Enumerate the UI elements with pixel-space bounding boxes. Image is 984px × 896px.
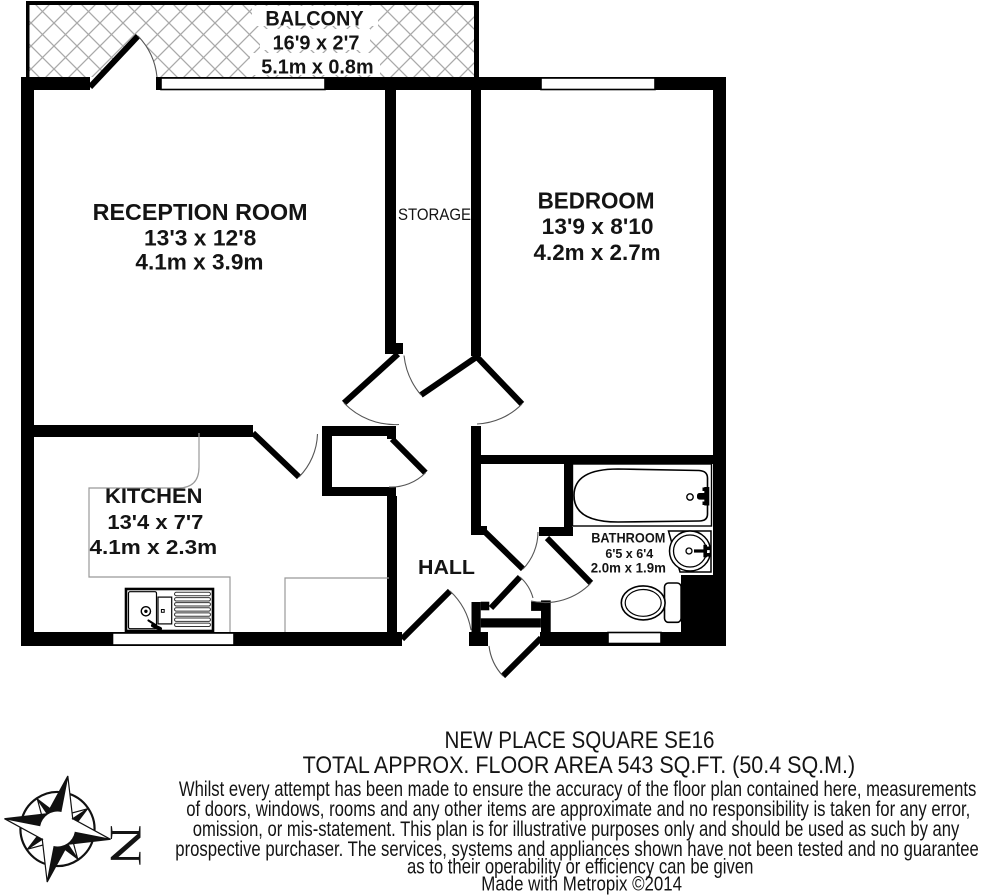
svg-text:4.2m x 2.7m: 4.2m x 2.7m	[534, 240, 661, 265]
svg-text:N: N	[100, 825, 150, 867]
svg-text:HALL: HALL	[418, 557, 475, 579]
svg-text:2.0m x 1.9m: 2.0m x 1.9m	[591, 560, 666, 575]
svg-text:13'3 x 12'8: 13'3 x 12'8	[144, 225, 256, 250]
svg-text:13'9 x 8'10: 13'9 x 8'10	[542, 214, 654, 239]
svg-text:TOTAL APPROX. FLOOR AREA 543 S: TOTAL APPROX. FLOOR AREA 543 SQ.FT. (50.…	[303, 752, 856, 779]
svg-text:5.1m x 0.8m: 5.1m x 0.8m	[261, 56, 373, 79]
svg-text:BALCONY: BALCONY	[265, 7, 363, 31]
svg-text:Made with Metropix ©2014: Made with Metropix ©2014	[481, 874, 682, 896]
svg-text:6'5 x 6'4: 6'5 x 6'4	[605, 546, 654, 561]
svg-text:RECEPTION ROOM: RECEPTION ROOM	[93, 199, 308, 225]
svg-text:BATHROOM: BATHROOM	[591, 529, 665, 545]
svg-text:16'9 x 2'7: 16'9 x 2'7	[273, 31, 360, 54]
svg-text:BEDROOM: BEDROOM	[538, 188, 655, 214]
svg-text:NEW PLACE SQUARE SE16: NEW PLACE SQUARE SE16	[445, 727, 715, 754]
svg-text:4.1m x 2.3m: 4.1m x 2.3m	[90, 537, 218, 559]
svg-text:KITCHEN: KITCHEN	[105, 484, 203, 508]
svg-text:4.1m x 3.9m: 4.1m x 3.9m	[135, 250, 263, 275]
svg-text:13'4 x 7'7: 13'4 x 7'7	[107, 512, 203, 534]
svg-text:STORAGE: STORAGE	[398, 206, 471, 224]
